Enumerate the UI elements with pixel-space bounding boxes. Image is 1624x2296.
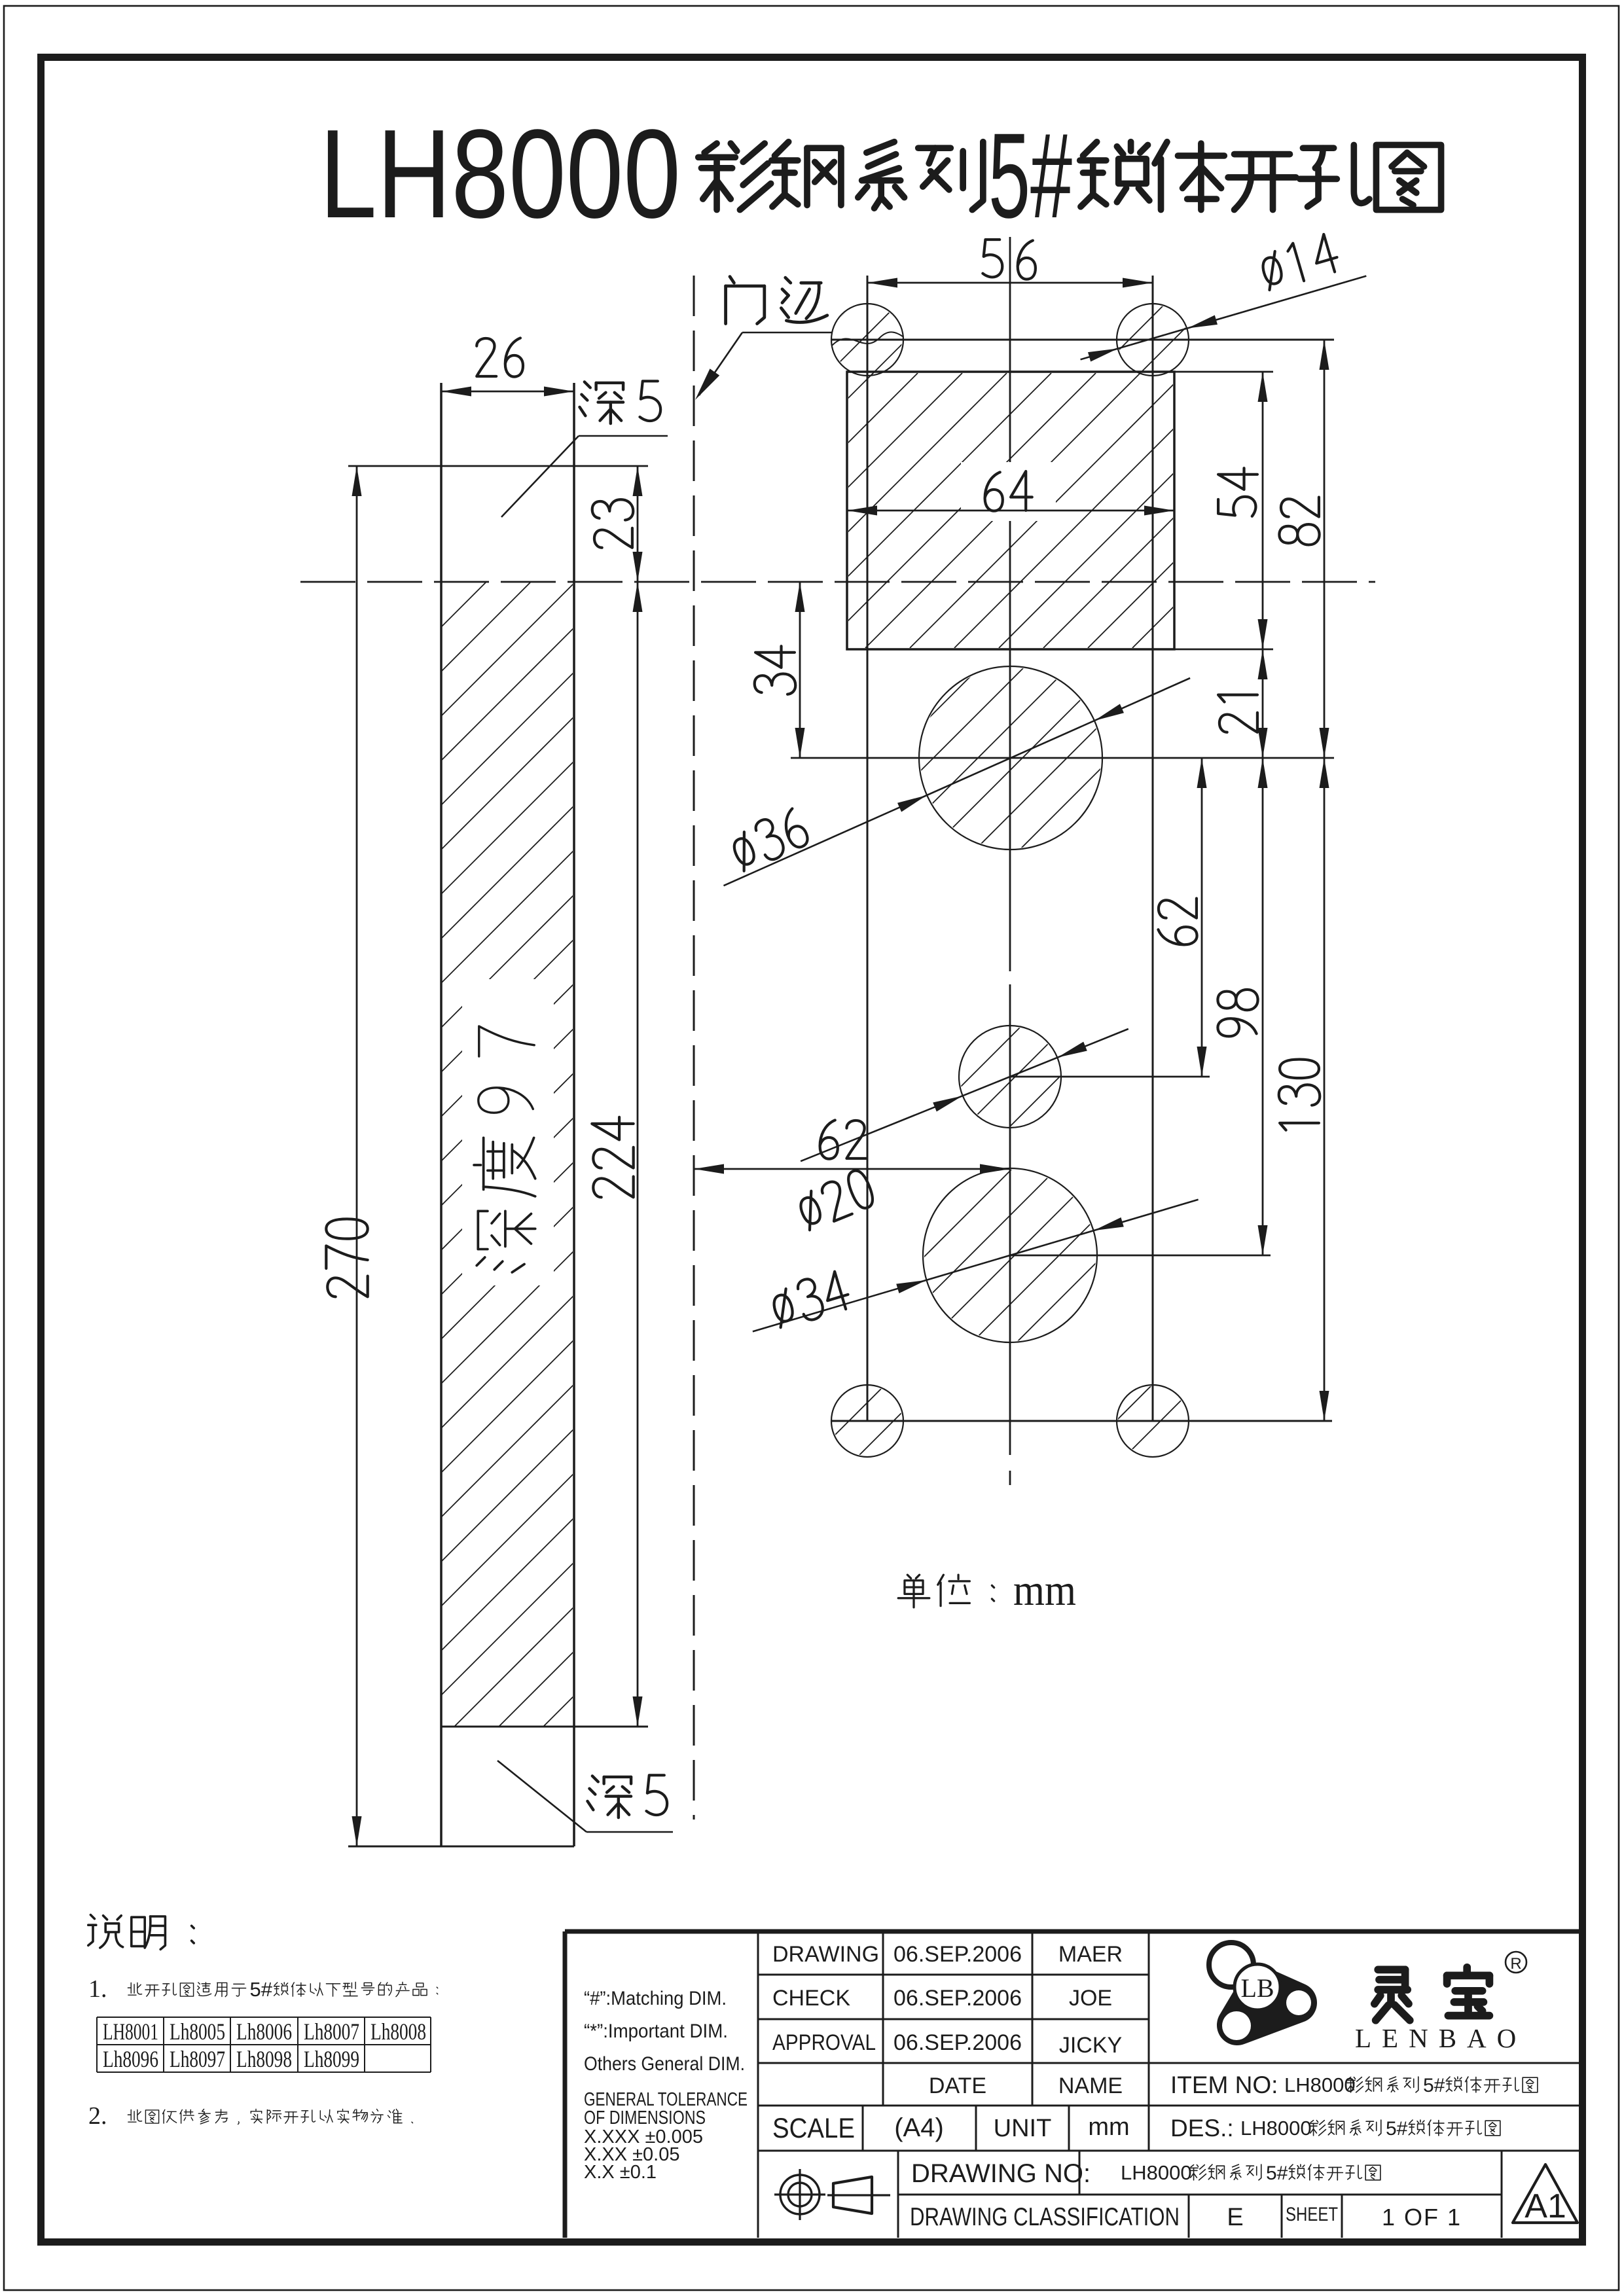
svg-text:CHECK: CHECK	[772, 1986, 850, 2011]
svg-text:“#”:Matching DIM.: “#”:Matching DIM.	[584, 1988, 727, 2009]
svg-text:Lh8096: Lh8096	[103, 2046, 158, 2072]
svg-text:LH8000: LH8000	[319, 103, 681, 244]
svg-text:LB: LB	[1240, 1973, 1274, 2003]
svg-text:Lh8007: Lh8007	[304, 2018, 359, 2045]
svg-text:1.: 1.	[88, 1975, 107, 2003]
svg-text:DRAWING CLASSIFICATION: DRAWING CLASSIFICATION	[910, 2203, 1180, 2231]
svg-text:Lh8005: Lh8005	[170, 2018, 225, 2045]
svg-text:06.SEP.2006: 06.SEP.2006	[893, 2030, 1022, 2055]
svg-text:LH8000: LH8000	[1284, 2073, 1356, 2096]
svg-text:5#: 5#	[1386, 2118, 1408, 2140]
svg-text:JOE: JOE	[1069, 1986, 1112, 2011]
svg-text:APPROVAL: APPROVAL	[772, 2030, 876, 2055]
svg-text:Lh8008: Lh8008	[370, 2018, 426, 2045]
svg-text:5#: 5#	[250, 1978, 273, 2001]
svg-text:(A4): (A4)	[894, 2113, 944, 2142]
svg-text:5#: 5#	[988, 109, 1072, 243]
svg-text:Others General DIM.: Others General DIM.	[584, 2053, 745, 2075]
svg-text:LH8000: LH8000	[1240, 2117, 1312, 2140]
svg-text:Lh8099: Lh8099	[304, 2046, 359, 2072]
svg-text:1 OF 1: 1 OF 1	[1382, 2204, 1462, 2231]
svg-text:ITEM NO:: ITEM NO:	[1170, 2072, 1278, 2098]
svg-text:A1: A1	[1525, 2187, 1566, 2225]
svg-text:DES.:: DES.:	[1170, 2115, 1234, 2142]
svg-text:06.SEP.2006: 06.SEP.2006	[893, 1942, 1022, 1967]
svg-text:MAER: MAER	[1058, 1942, 1123, 1967]
svg-text:Lh8006: Lh8006	[236, 2018, 292, 2045]
svg-text:06.SEP.2006: 06.SEP.2006	[893, 1986, 1022, 2011]
svg-text:DRAWING: DRAWING	[772, 1942, 879, 1967]
svg-text:5#: 5#	[1423, 2075, 1445, 2096]
svg-text:R: R	[1510, 1955, 1521, 1973]
svg-text:SCALE: SCALE	[772, 2113, 855, 2144]
svg-text:DATE: DATE	[929, 2073, 986, 2098]
svg-text:Lh8098: Lh8098	[236, 2046, 292, 2072]
svg-text:UNIT: UNIT	[994, 2115, 1052, 2142]
svg-text:X.X ±0.1: X.X ±0.1	[584, 2162, 657, 2183]
svg-text:DRAWING NO:: DRAWING NO:	[911, 2159, 1091, 2188]
svg-text:“*”:Important DIM.: “*”:Important DIM.	[584, 2020, 728, 2042]
svg-text:SHEET: SHEET	[1286, 2204, 1338, 2225]
svg-text:E: E	[1227, 2204, 1243, 2231]
svg-text:5#: 5#	[1266, 2162, 1288, 2184]
svg-text:JICKY: JICKY	[1059, 2033, 1122, 2058]
svg-text:LENBAO: LENBAO	[1355, 2023, 1526, 2053]
svg-text:LH8000: LH8000	[1121, 2161, 1192, 2184]
svg-text:OF DIMENSIONS: OF DIMENSIONS	[584, 2108, 706, 2128]
svg-text:Lh8097: Lh8097	[170, 2046, 225, 2072]
svg-text:2.: 2.	[88, 2102, 107, 2130]
svg-text:NAME: NAME	[1058, 2073, 1123, 2098]
svg-text:LH8001: LH8001	[103, 2018, 158, 2045]
svg-text:mm: mm	[1013, 1565, 1076, 1615]
svg-text:mm: mm	[1088, 2113, 1129, 2141]
